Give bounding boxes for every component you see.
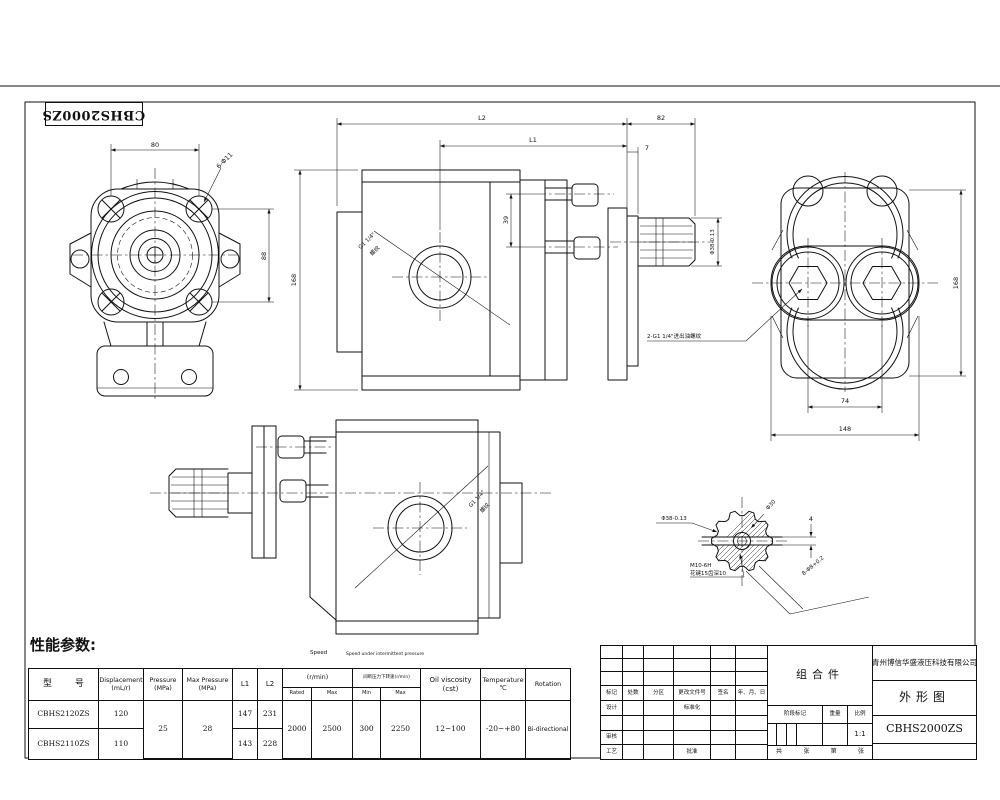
intermittent-group-label: Speed under intermittent pressure (346, 652, 424, 657)
bottom-port-thread-cn: 螺纹 (478, 501, 492, 515)
design-label: 设计 (601, 701, 623, 716)
approve-label: 批准 (674, 745, 711, 759)
revision-cell (736, 659, 768, 672)
revision-cell (601, 659, 623, 672)
assembly-title: 组合件 (768, 646, 873, 706)
col-header-viscosity-l2: (cst) (443, 685, 459, 693)
process-cell (711, 745, 736, 759)
sheet-no-unit: 张 (858, 749, 864, 756)
section-spline-label: 花键15齿深10 (690, 569, 726, 577)
revision-cell (674, 716, 711, 731)
drawing-sheet: 80 6-Φ11 88 (0, 0, 1000, 800)
rev-header-count: 处数 (623, 686, 644, 701)
company-name: 青州博信华盛液压科技有限公司 (873, 646, 976, 681)
rear-ports-label: 2-G1 1/4"进出油螺纹 (647, 332, 702, 340)
cell-int-max-speed: 2250 (381, 701, 421, 759)
revision-cell (711, 646, 736, 659)
rev-header-signature: 签名 (711, 686, 736, 701)
check-label: 审核 (601, 731, 623, 745)
design-cell (623, 701, 644, 716)
cell-l1-1: 147 (233, 701, 258, 729)
stage-mark-cell (797, 724, 823, 746)
section-major-dia: Φ38-0.13 (661, 516, 687, 522)
cell-l2-2: 228 (258, 729, 283, 759)
design-cell (736, 701, 768, 716)
check-cell (736, 731, 768, 745)
check-cell (644, 731, 674, 745)
cell-max-pressure: 28 (183, 701, 233, 759)
revision-cell (644, 659, 674, 672)
stage-mark-cell (777, 724, 787, 746)
col-header-pressure: Pressure (MPa) (144, 669, 183, 701)
cell-viscosity: 12~100 (421, 701, 481, 759)
process-cell (644, 745, 674, 759)
title-block: 标记 处数 分区 更改文件号 签名 年、月、日 设计 标准化 审核 工艺 批准 … (600, 645, 977, 760)
col-header-max-pressure-l2: (MPa) (199, 685, 217, 692)
cell-pressure: 25 (144, 701, 183, 759)
sheet-total-unit: 张 (803, 749, 809, 756)
title-block-empty-cell (873, 744, 976, 759)
check-cell (623, 731, 644, 745)
cell-displacement-2: 110 (99, 729, 144, 759)
col-header-pressure-l2: (MPa) (154, 685, 172, 692)
check-cell (711, 731, 736, 745)
side-view: G1 1/4" 螺纹 168 L2 L1 82 7 39 Φ38-0.13 (290, 114, 722, 390)
dim-face: 7 (645, 144, 649, 152)
col-header-int-max: Max (381, 688, 421, 701)
revision-cell (623, 716, 644, 731)
bottom-side-view: G1 1/4" 螺纹 (150, 420, 552, 634)
drawing-number-stamp: CBHS2000ZS (45, 102, 143, 126)
sheet-no-label: 第 (831, 749, 837, 756)
side-port-thread-cn: 螺纹 (368, 244, 382, 258)
process-cell (736, 745, 768, 759)
col-header-l2: L2 (258, 669, 283, 701)
section-thread-label: M10-6H (690, 563, 711, 569)
col-header-viscosity-l1: Oil viscosity (430, 676, 472, 684)
col-header-rotation: Rotation (526, 669, 570, 701)
cell-l2-1: 231 (258, 701, 283, 729)
dim-l2: L2 (478, 114, 486, 122)
revision-cell (623, 646, 644, 659)
revision-cell (736, 646, 768, 659)
cell-max-speed: 2500 (312, 701, 353, 759)
col-header-temperature-l2: ℃ (499, 685, 506, 692)
check-cell (674, 731, 711, 745)
cell-l1-2: 143 (233, 729, 258, 759)
revision-cell (674, 672, 711, 686)
col-header-max-pressure-l1: Max Pressure (187, 677, 229, 684)
col-header-pressure-l1: Pressure (150, 677, 177, 684)
col-header-min: Min (353, 688, 381, 701)
col-header-speed-unit: (r/min) (283, 669, 353, 688)
rev-header-doc-no: 更改文件号 (674, 686, 711, 701)
dim-rear-width: 148 (839, 425, 851, 433)
process-label: 工艺 (601, 745, 623, 759)
revision-cell (601, 646, 623, 659)
dim-shaft-length: 82 (657, 114, 665, 122)
scale-label: 比例 (848, 706, 873, 724)
process-cell (623, 745, 644, 759)
cell-rated-speed: 2000 (283, 701, 312, 759)
rev-header-zone: 分区 (644, 686, 674, 701)
stage-mark-cell (768, 724, 777, 746)
scale-value: 1:1 (848, 724, 873, 746)
design-cell (711, 701, 736, 716)
cell-min-speed: 300 (353, 701, 381, 759)
cell-model-2: CBHS2110ZS (29, 729, 99, 759)
performance-table: 型 号 Displacement (mL/r) Pressure (MPa) M… (28, 668, 571, 760)
col-header-model: 型 号 (29, 669, 99, 701)
col-header-speed-max: Max (312, 688, 353, 701)
weight-value-cell (823, 724, 848, 746)
rev-header-date: 年、月、日 (736, 686, 768, 701)
col-header-rated: Rated (283, 688, 312, 701)
cell-rotation: Bi-directional (526, 701, 570, 759)
stage-mark-label: 阶段标记 (768, 706, 823, 724)
revision-cell (674, 646, 711, 659)
drawing-model-number: CBHS2000ZS (873, 716, 976, 744)
sheet-total-label: 共 (776, 749, 782, 756)
cell-displacement-1: 120 (99, 701, 144, 729)
dim-l1: L1 (529, 136, 537, 144)
revision-cell (644, 672, 674, 686)
col-header-displacement-l2: (mL/r) (111, 685, 130, 692)
col-header-displacement-l1: Displacement (99, 677, 142, 684)
performance-heading: 性能参数: (30, 634, 96, 655)
revision-cell (644, 716, 674, 731)
revision-cell (601, 672, 623, 686)
drawing-number-stamp-text: CBHS2000ZS (42, 107, 145, 122)
section-minor-dia: Φ30 (765, 499, 777, 512)
col-header-l1: L1 (233, 669, 258, 701)
cell-model-1: CBHS2120ZS (29, 701, 99, 729)
dim-rear-height: 168 (952, 277, 960, 289)
weight-label: 重量 (823, 706, 848, 724)
cell-temperature: -20~+80 (481, 701, 526, 759)
shaft-section-view: Φ38-0.13 Φ30 4 M10-6H 花键15齿深10 8-Φ8+0.2 (656, 497, 881, 614)
sheet-count-row: 共 张 第 张 (768, 746, 873, 759)
dim-shaft-dia: Φ38-0.13 (710, 229, 716, 255)
col-header-max-pressure: Max Pressure (MPa) (183, 669, 233, 701)
revision-cell (711, 716, 736, 731)
col-header-displacement: Displacement (mL/r) (99, 669, 144, 701)
speed-group-label: Speed (310, 650, 327, 656)
section-tolerance-label: 8-Φ8+0.2 (801, 555, 825, 577)
revision-cell (736, 716, 768, 731)
col-header-viscosity: Oil viscosity (cst) (421, 669, 481, 701)
drawing-name: 外形图 (873, 681, 976, 716)
stage-mark-cell (787, 724, 797, 746)
revision-cell (601, 716, 623, 731)
revision-cell (644, 646, 674, 659)
revision-cell (623, 672, 644, 686)
section-slot-dim: 4 (809, 515, 813, 523)
revision-cell (711, 672, 736, 686)
dim-front-height: 88 (260, 252, 268, 260)
dim-port-distance: 39 (502, 216, 510, 224)
revision-cell (736, 672, 768, 686)
dim-front-width: 80 (151, 141, 159, 149)
design-cell (644, 701, 674, 716)
revision-cell (623, 659, 644, 672)
standardize-label: 标准化 (674, 701, 711, 716)
rev-header-mark: 标记 (601, 686, 623, 701)
dim-side-height: 168 (290, 274, 298, 286)
col-header-intermittent: 间断压力下转速(r/min) (353, 669, 421, 688)
dim-port-spacing: 74 (841, 397, 849, 405)
revision-cell (711, 659, 736, 672)
col-header-temperature: Temperature ℃ (481, 669, 526, 701)
front-view: 80 6-Φ11 88 (70, 141, 274, 402)
revision-cell (674, 659, 711, 672)
front-hole-label: 6-Φ11 (215, 151, 235, 171)
